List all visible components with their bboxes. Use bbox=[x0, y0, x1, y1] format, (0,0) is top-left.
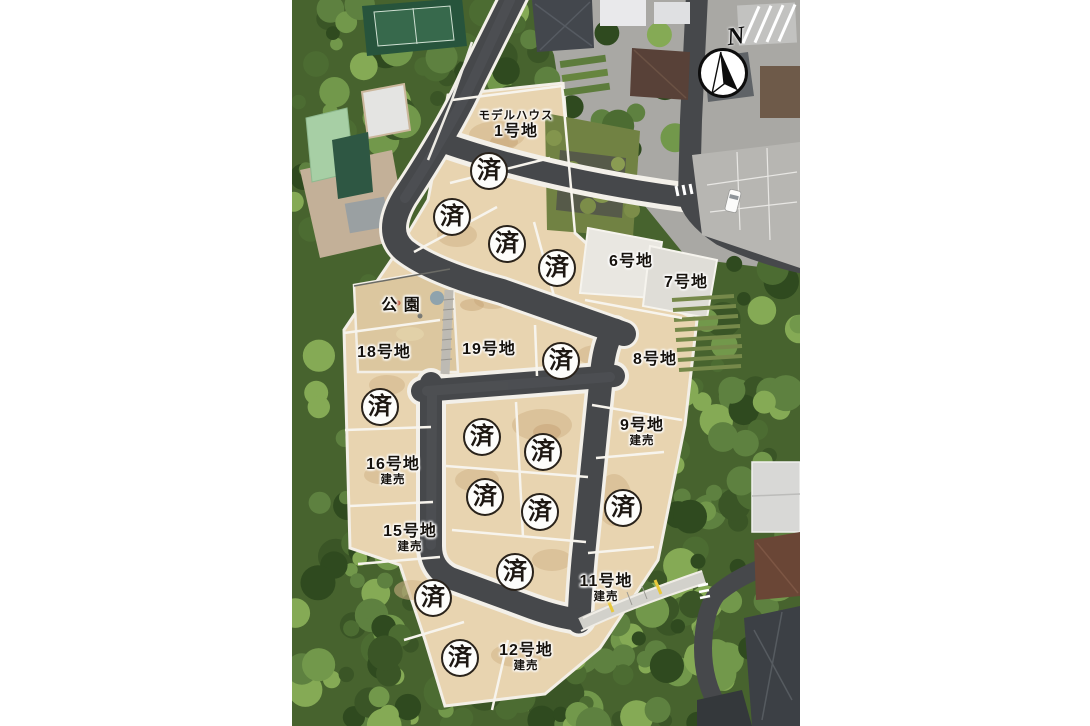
compass-letter: N bbox=[725, 22, 747, 52]
north-needle-icon bbox=[698, 48, 748, 98]
subdivision-map-page: 済済済済済済済済済済済済済済モデルハウス1号地6号地7号地公 園18号地19号地… bbox=[0, 0, 1090, 726]
aerial-photo-svg bbox=[292, 0, 800, 726]
aerial-photo bbox=[292, 0, 800, 726]
